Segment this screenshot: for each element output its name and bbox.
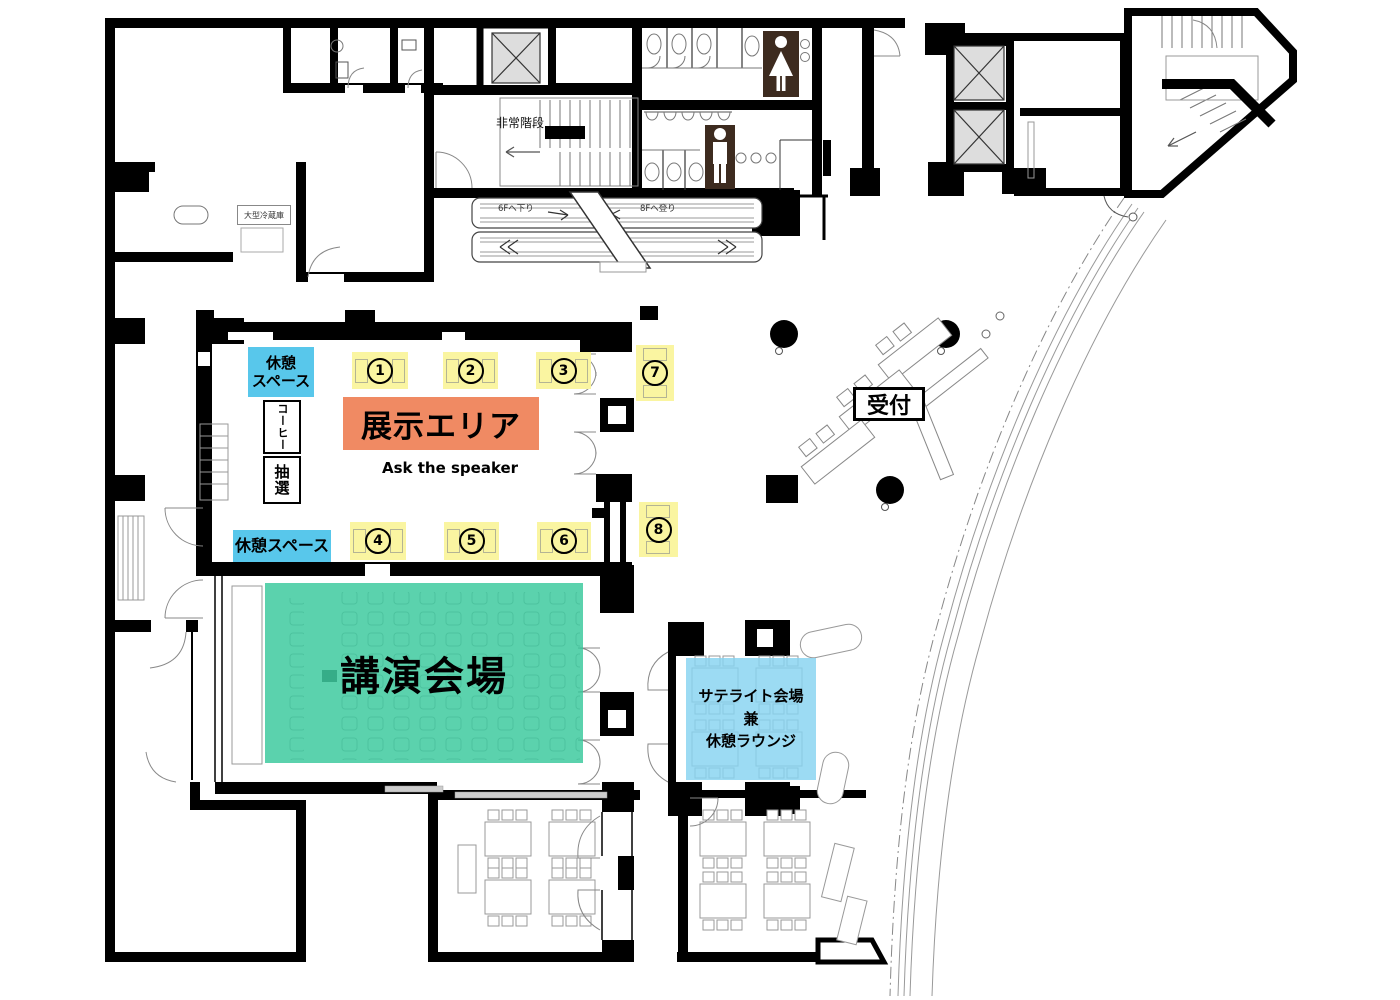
booth-5: 5 [444, 522, 499, 560]
booth-7: 7 [636, 345, 674, 401]
ask-the-speaker-label: Ask the speaker [382, 459, 542, 479]
coffee-label: コーヒー [274, 403, 290, 451]
lecture-hall-label: 講演会場 [265, 583, 583, 763]
storage-fixtures [174, 40, 416, 252]
booth-2-number: 2 [458, 358, 484, 384]
large-refrigerator-label: 大型冷蔵庫 [237, 205, 291, 225]
floorplan-linework [0, 0, 1400, 1000]
coffee-counter: コーヒー [263, 400, 301, 454]
escalator-up-label: 8Fへ登り [640, 202, 676, 214]
reception-label: 受付 [853, 387, 925, 421]
booth-5-number: 5 [459, 528, 485, 554]
booth-1: 1 [352, 352, 408, 389]
rest-space-top-line2: スペース [252, 372, 310, 390]
curved-facade [818, 196, 1166, 996]
satellite-label-line2: 兼 [743, 708, 758, 731]
booth-4-number: 4 [365, 528, 391, 554]
booth-8: 8 [639, 502, 678, 557]
booth-4: 4 [350, 522, 406, 560]
rest-space-bottom: 休憩スペース [233, 530, 331, 562]
lottery-counter: 抽選 [263, 456, 301, 504]
booth-8-number: 8 [646, 517, 672, 543]
exhibition-area-label: 展示エリア [343, 397, 539, 450]
satellite-label-line3: 休憩ラウンジ [706, 730, 796, 753]
emergency-stairs [436, 98, 638, 188]
booth-2: 2 [443, 352, 498, 389]
male-icon [705, 125, 735, 189]
lottery-label: 抽選 [272, 464, 293, 496]
female-icon [763, 31, 799, 97]
booth-6: 6 [537, 522, 591, 560]
emergency-stairs-label: 非常階段 [496, 114, 576, 130]
booth-6-number: 6 [551, 528, 577, 554]
rest-space-top: 休憩 スペース [248, 347, 314, 397]
booth-1-number: 1 [367, 358, 393, 384]
rest-space-top-line1: 休憩 [266, 354, 296, 372]
booth-3-number: 3 [551, 358, 577, 384]
satellite-label: サテライト会場 兼 休憩ラウンジ [686, 658, 816, 780]
staircase-top-right [1128, 12, 1293, 194]
booth-3: 3 [536, 352, 591, 389]
escalator-down-label: 6Fへ下り [498, 202, 534, 214]
floor-plan: 講演会場 サテライト会場 兼 休憩ラウンジ 展示エリア 休憩 スペース 休憩スペ… [0, 0, 1400, 1000]
booth-7-number: 7 [642, 360, 668, 386]
window-bands [385, 786, 607, 798]
satellite-label-line1: サテライト会場 [698, 685, 803, 708]
